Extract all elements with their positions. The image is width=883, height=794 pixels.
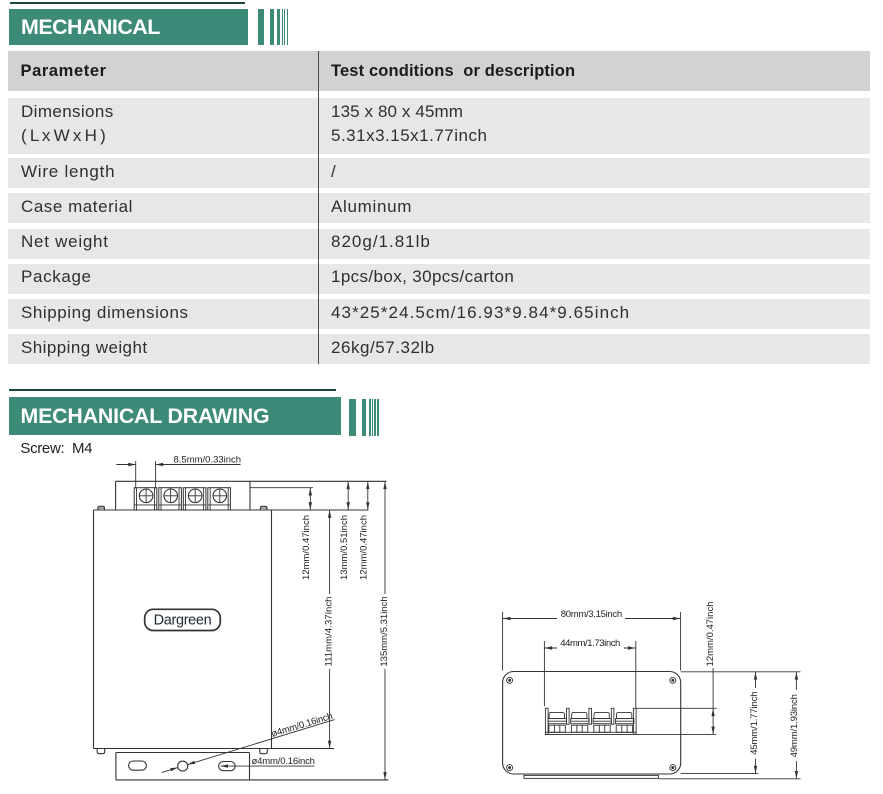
svg-text:111mm/4.37inch: 111mm/4.37inch xyxy=(324,596,335,666)
svg-text:12mm/0.47inch: 12mm/0.47inch xyxy=(705,602,716,667)
svg-text:12mm/0.47inch: 12mm/0.47inch xyxy=(359,515,370,580)
svg-text:49mm/1.93inch: 49mm/1.93inch xyxy=(789,694,800,757)
svg-text:ø4mm/0.16inch: ø4mm/0.16inch xyxy=(252,756,315,767)
svg-text:45mm/1.77inch: 45mm/1.77inch xyxy=(749,692,760,755)
svg-text:135mm/5.31inch: 135mm/5.31inch xyxy=(379,596,390,666)
svg-text:80mm/3.15inch: 80mm/3.15inch xyxy=(561,609,622,620)
svg-text:Dargreen: Dargreen xyxy=(154,613,212,629)
svg-text:13mm/0.51inch: 13mm/0.51inch xyxy=(339,515,350,580)
svg-text:ø4mm/0.16inch: ø4mm/0.16inch xyxy=(270,711,334,740)
svg-text:44mm/1.73inch: 44mm/1.73inch xyxy=(560,638,620,649)
svg-text:12mm/0.47inch: 12mm/0.47inch xyxy=(301,515,312,580)
svg-text:8.5mm/0.33inch: 8.5mm/0.33inch xyxy=(174,455,242,466)
